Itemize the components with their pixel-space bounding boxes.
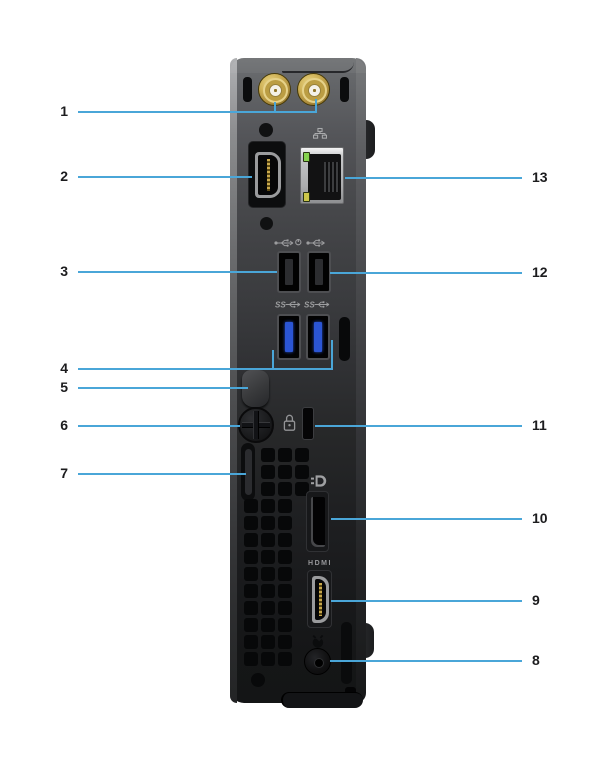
vent-hole [261,448,275,462]
kensington-lock-slot [302,407,314,440]
vent-hole [244,533,258,547]
usb3-tongue [285,322,293,352]
displayport [306,491,329,552]
displayport-icon [311,475,327,487]
vent-hole [278,618,292,632]
vent-hole [244,635,258,649]
video-connector [255,152,281,198]
vent-hole [278,635,292,649]
vent-hole [261,516,275,530]
callout-number-2: 2 [44,167,68,185]
screw-hole-top [259,123,273,137]
vent-hole [244,499,258,513]
callout-number-6: 6 [44,416,68,434]
vent-hole [278,533,292,547]
svg-text:SS: SS [304,301,315,310]
callout-number-4: 4 [44,359,68,377]
top-left-slot [243,77,252,102]
hdmi-port [307,570,332,628]
vent-hole [261,550,275,564]
vent-hole [278,482,292,496]
diagram-canvas: SS SS [0,0,600,766]
vent-hole [244,584,258,598]
usb-tongue [285,259,293,285]
vent-hole [244,550,258,564]
video-connector-pins [267,159,270,191]
cover-seam [282,62,354,73]
optional-video-port [248,141,286,208]
security-lock-icon [283,413,296,432]
vent-hole [278,601,292,615]
vent-hole [244,516,258,530]
usb3-port-right [306,314,330,360]
usb-smart-power-icon [274,237,302,248]
svg-text:SS: SS [275,301,286,310]
vent-hole [278,499,292,513]
vent-hole [295,465,309,479]
vent-hole [261,567,275,581]
vent-hole [261,465,275,479]
callout-number-10: 10 [532,509,556,527]
ethernet-pins [324,162,339,192]
usb2-port-right [307,251,331,293]
hdmi-connector-pins [319,583,322,616]
vent-hole [295,448,309,462]
vent-hole [278,448,292,462]
ethernet-activity-led [303,192,310,202]
ethernet-link-led [303,152,310,162]
ethernet-jack [308,154,341,200]
vent-hole [278,652,292,666]
power-pin-hole [314,658,324,668]
vent-hole [278,516,292,530]
antenna-center-dot [274,89,277,92]
ethernet-port [300,147,344,204]
vent-hole [278,584,292,598]
vent-hole [261,635,275,649]
vent-hole [244,652,258,666]
usb3-ss-icon: SS [275,299,302,310]
callout-line-6 [78,425,240,427]
vent-hole [261,584,275,598]
vent-hole [278,465,292,479]
usb-icon [306,238,326,248]
chassis-left-edge [230,58,237,703]
vent-hole [278,550,292,564]
callout-line-13 [345,177,522,179]
vent-hole [261,652,275,666]
sma-antenna-connector-right [297,73,330,106]
vent-hole [278,567,292,581]
power-connector [304,648,331,675]
usb3-ss-icon: SS [304,299,331,310]
usb3-tongue [314,322,322,352]
power-plug-icon [311,632,325,648]
callout-number-3: 3 [44,262,68,280]
vent-grid [244,448,354,680]
vent-hole [261,618,275,632]
callout-number-9: 9 [532,591,556,609]
cable-holder [242,370,269,407]
hdmi-label: HDMI [305,559,335,568]
network-icon [313,126,327,140]
vent-hole [244,601,258,615]
callout-number-7: 7 [44,464,68,482]
bottom-right-slot [341,622,352,684]
vent-hole [244,618,258,632]
vent-hole [261,499,275,513]
vent-hole [244,567,258,581]
screw-hole-middle [260,217,273,230]
antenna-center-dot [313,89,316,92]
callout-line-5 [78,387,248,389]
usb2-port-left [277,251,301,293]
sma-antenna-connector-left [258,73,291,106]
vent-hole [261,482,275,496]
callout-number-5: 5 [44,378,68,396]
thumbscrew-groove [253,411,259,439]
vent-hole [261,533,275,547]
callout-number-13: 13 [532,168,556,186]
callout-number-12: 12 [532,263,556,281]
callout-line-7 [78,473,246,475]
thumbscrew [238,407,274,443]
cable-cover-slot [339,317,350,361]
callout-line-2 [78,176,252,178]
chassis-right-edge [356,58,366,703]
usb-tongue [315,259,323,285]
callout-number-1: 1 [44,102,68,120]
top-right-slot [340,77,349,102]
hdmi-connector [312,576,329,623]
usb3-port-left [277,314,301,360]
callout-number-11: 11 [532,416,556,434]
callout-number-8: 8 [532,651,556,669]
displayport-opening [311,497,325,547]
vent-hole [261,601,275,615]
mini-pc-rear-panel: SS SS [230,58,366,703]
bottom-foot [281,692,363,708]
